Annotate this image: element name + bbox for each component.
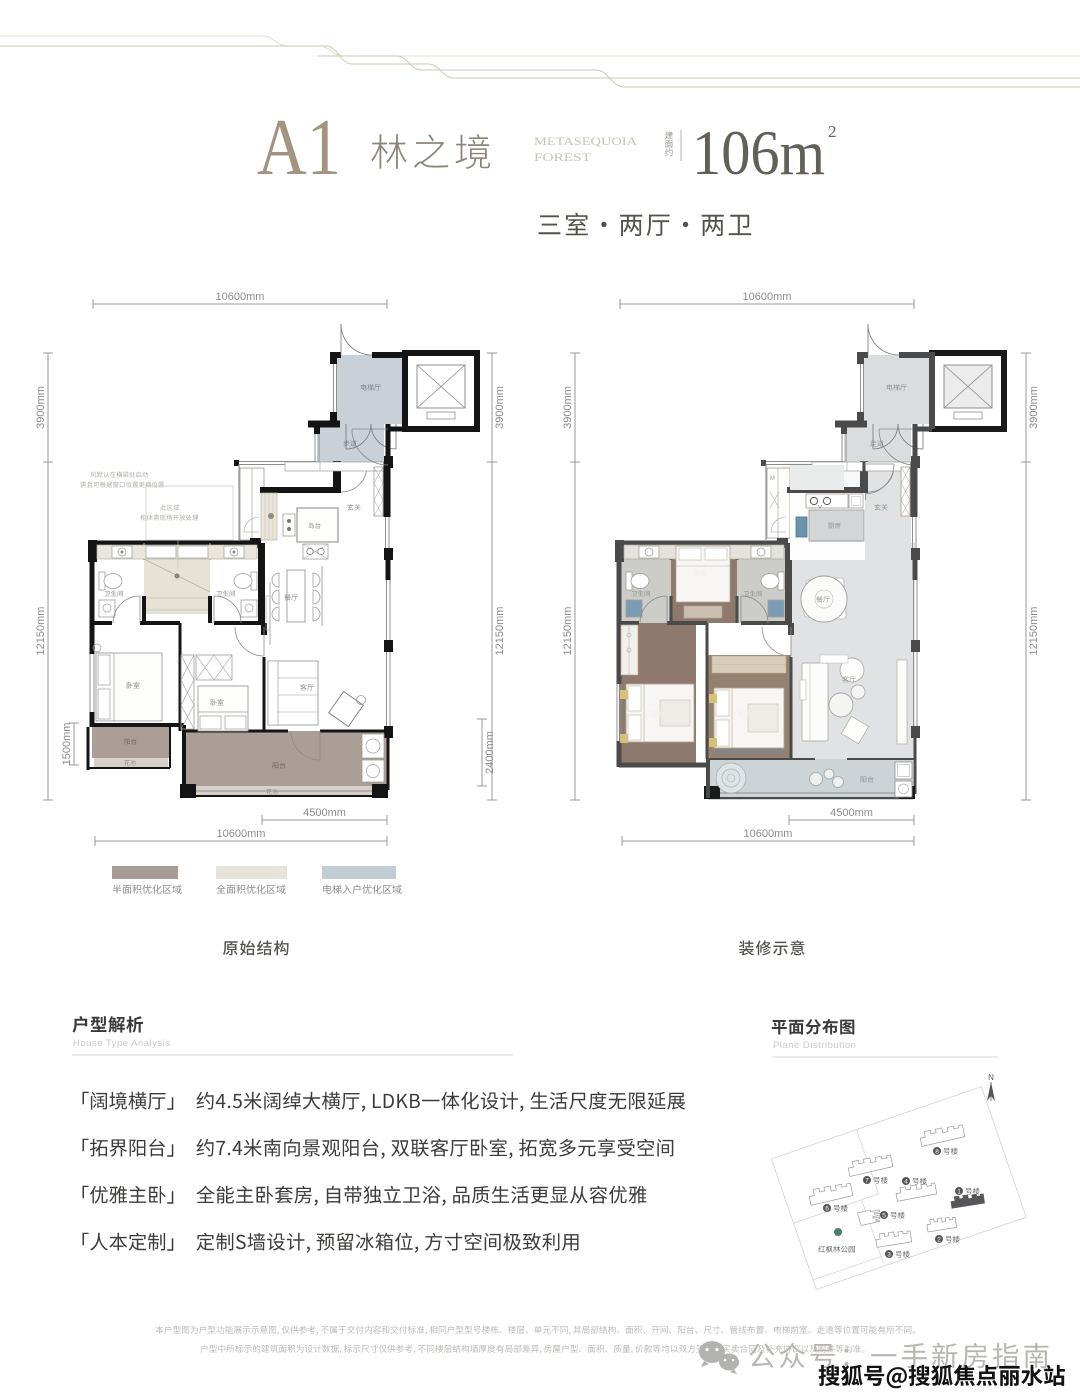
svg-text:4: 4: [904, 1178, 908, 1185]
svg-text:10600mm: 10600mm: [743, 291, 792, 303]
svg-text:4500mm: 4500mm: [303, 807, 346, 819]
svg-text:10600mm: 10600mm: [216, 291, 265, 303]
svg-text:2: 2: [828, 122, 837, 141]
svg-text:A1: A1: [257, 104, 341, 192]
svg-text:8: 8: [935, 1148, 939, 1155]
svg-text:10600mm: 10600mm: [217, 828, 266, 840]
svg-text:6: 6: [825, 1205, 829, 1212]
svg-text:7: 7: [865, 1177, 869, 1184]
svg-text:2: 2: [937, 1236, 941, 1243]
svg-text:METASEQUOIA: METASEQUOIA: [534, 134, 637, 148]
svg-text:3900mm: 3900mm: [35, 386, 47, 429]
svg-text:106m: 106m: [692, 118, 825, 188]
svg-text:5: 5: [882, 1212, 886, 1219]
svg-text:12150mm: 12150mm: [35, 607, 47, 656]
svg-text:12150mm: 12150mm: [562, 607, 574, 656]
svg-text:3900mm: 3900mm: [1028, 386, 1040, 429]
svg-text:1500mm: 1500mm: [61, 723, 73, 766]
svg-text:2400mm: 2400mm: [484, 731, 496, 774]
svg-text:3900mm: 3900mm: [494, 386, 506, 429]
svg-text:12150mm: 12150mm: [494, 607, 506, 656]
svg-text:3900mm: 3900mm: [562, 386, 574, 429]
svg-text:FOREST: FOREST: [534, 150, 592, 164]
svg-text:10600mm: 10600mm: [744, 828, 793, 840]
svg-text:3: 3: [887, 1251, 891, 1258]
svg-text:1: 1: [957, 1188, 961, 1195]
svg-text:N: N: [988, 1073, 994, 1082]
svg-text:House Type Analysis: House Type Analysis: [73, 1038, 171, 1049]
svg-text:4500mm: 4500mm: [830, 807, 873, 819]
svg-text:Plane Distribution: Plane Distribution: [773, 1040, 856, 1051]
svg-text:12150mm: 12150mm: [1028, 607, 1040, 656]
